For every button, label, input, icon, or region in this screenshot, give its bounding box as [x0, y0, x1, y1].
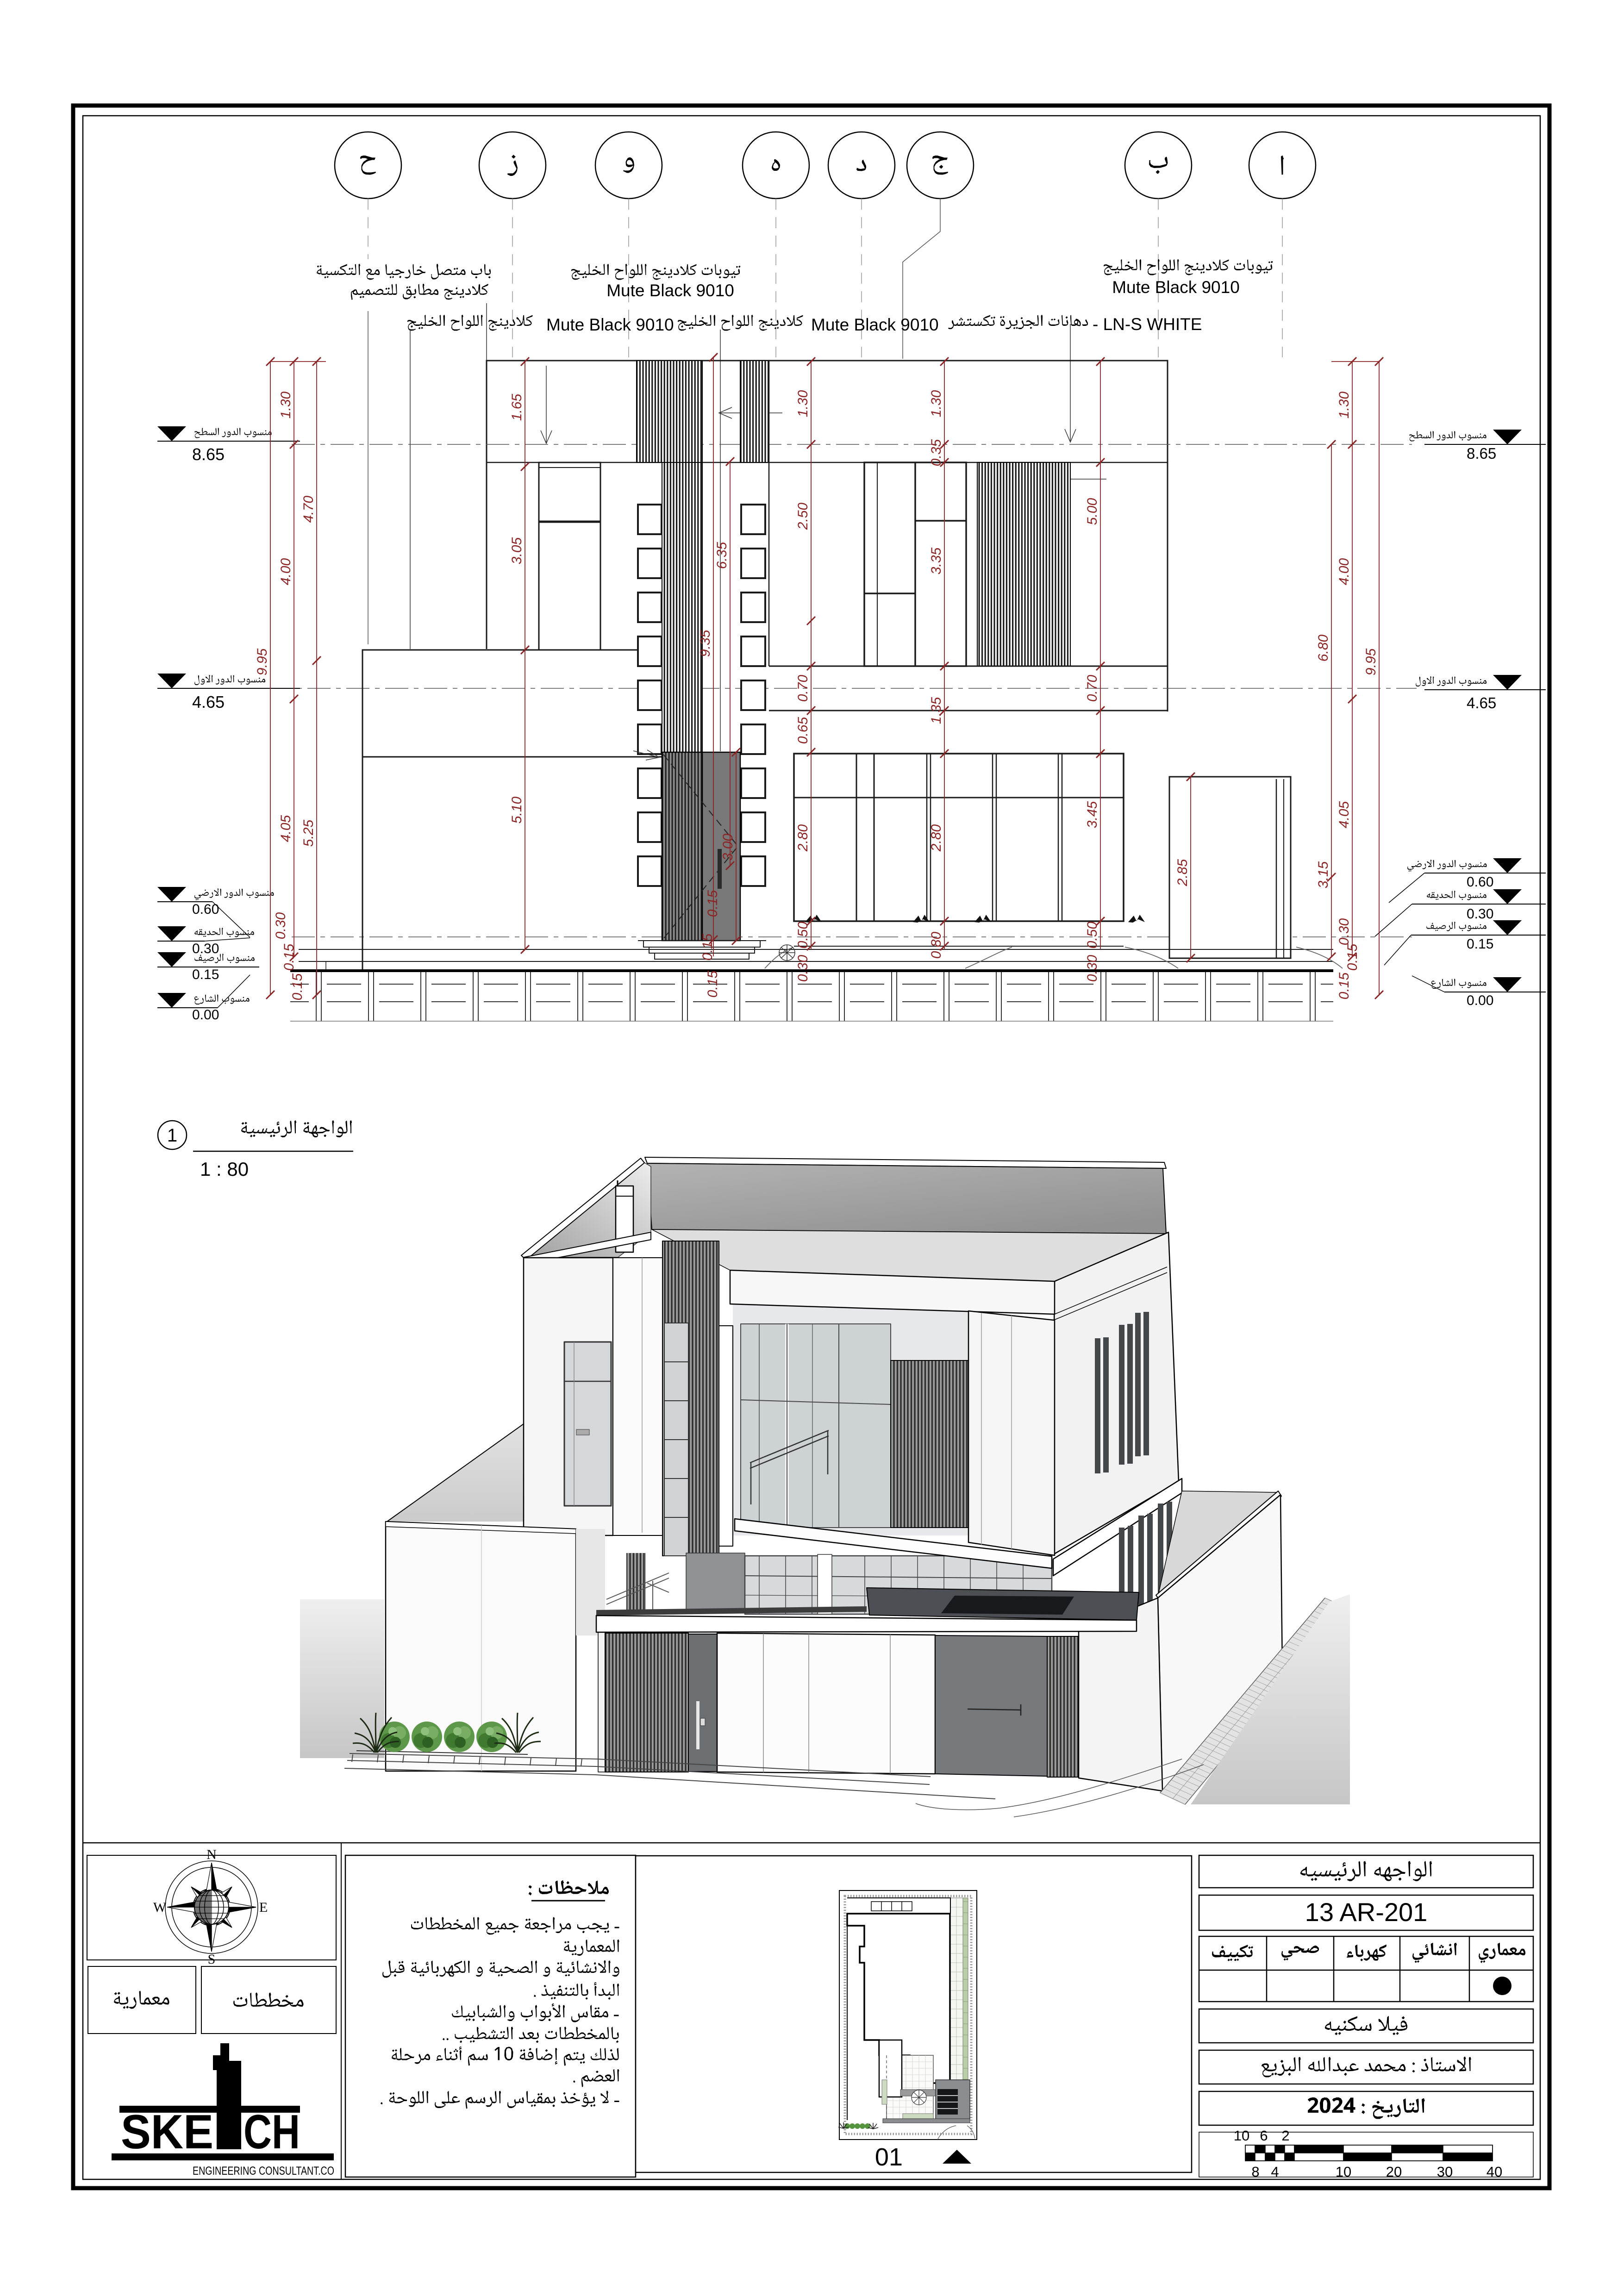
svg-text:0.35: 0.35 — [929, 439, 944, 466]
svg-text:1 : 80: 1 : 80 — [200, 1158, 249, 1180]
svg-text:0.15: 0.15 — [290, 973, 305, 1000]
svg-text:10: 10 — [1336, 2164, 1351, 2180]
svg-text:1.30: 1.30 — [929, 390, 944, 417]
svg-text:1.30: 1.30 — [795, 390, 811, 417]
svg-text:3.15: 3.15 — [1316, 861, 1331, 888]
svg-text:0.70: 0.70 — [1085, 674, 1100, 702]
svg-text:4.00: 4.00 — [1337, 558, 1352, 585]
svg-text:1.35: 1.35 — [929, 697, 944, 724]
svg-text:0.65: 0.65 — [795, 717, 811, 744]
svg-text:6: 6 — [1260, 2128, 1268, 2144]
svg-text:0.70: 0.70 — [795, 674, 811, 702]
svg-text:4.00: 4.00 — [278, 558, 294, 585]
svg-text:1: 1 — [167, 1125, 177, 1146]
svg-text:2.85: 2.85 — [1175, 859, 1190, 886]
svg-text:6.35: 6.35 — [714, 542, 730, 569]
svg-text:CH: CH — [244, 2105, 300, 2159]
svg-text:8.65: 8.65 — [192, 445, 225, 464]
svg-text:5.00: 5.00 — [1085, 498, 1100, 525]
svg-text:0.15: 0.15 — [281, 943, 297, 971]
svg-text:3.35: 3.35 — [929, 547, 944, 574]
svg-text:9.95: 9.95 — [1363, 648, 1379, 675]
svg-text:4.65: 4.65 — [1467, 694, 1496, 711]
svg-text:0.15: 0.15 — [1337, 972, 1352, 999]
svg-text:4.70: 4.70 — [301, 495, 316, 523]
svg-text:Mute Black 9010: Mute Black 9010 — [606, 281, 734, 300]
svg-text:9.35: 9.35 — [698, 630, 713, 657]
svg-text:40: 40 — [1487, 2164, 1502, 2180]
svg-text:1.30: 1.30 — [278, 391, 294, 418]
svg-text:1.30: 1.30 — [1337, 391, 1352, 418]
svg-text:4.05: 4.05 — [1337, 801, 1352, 828]
svg-text:0.30: 0.30 — [273, 912, 288, 939]
svg-text:4.65: 4.65 — [192, 693, 225, 711]
svg-text:0.15: 0.15 — [700, 933, 715, 961]
svg-text:01: 01 — [875, 2143, 903, 2171]
svg-text:30: 30 — [1437, 2164, 1453, 2180]
svg-text:9.95: 9.95 — [255, 648, 270, 675]
svg-text:8.65: 8.65 — [1467, 445, 1496, 462]
svg-text:W: W — [153, 1900, 167, 1915]
svg-text:0.30: 0.30 — [795, 955, 811, 982]
svg-text:0.50: 0.50 — [795, 921, 811, 948]
svg-text:Mute Black 9010: Mute Black 9010 — [811, 315, 939, 334]
svg-text:4: 4 — [1271, 2164, 1279, 2180]
svg-text:Mute Black 9010: Mute Black 9010 — [546, 315, 674, 334]
svg-text:0.15: 0.15 — [1345, 943, 1360, 971]
svg-text:2: 2 — [1281, 2128, 1289, 2144]
svg-text:0.15: 0.15 — [192, 967, 219, 982]
svg-text:0.30: 0.30 — [1085, 955, 1100, 982]
svg-text:0.15: 0.15 — [705, 970, 720, 998]
svg-text:20: 20 — [1386, 2164, 1402, 2180]
svg-text:Mute Black 9010: Mute Black 9010 — [1112, 278, 1240, 297]
svg-text:0.00: 0.00 — [1467, 993, 1493, 1008]
svg-text:N: N — [206, 1847, 217, 1862]
svg-text:0.30: 0.30 — [1467, 906, 1493, 922]
svg-text:0.50: 0.50 — [1085, 921, 1100, 948]
svg-text:10: 10 — [1234, 2128, 1249, 2144]
svg-text:0.30: 0.30 — [1337, 918, 1352, 945]
svg-text:5.10: 5.10 — [509, 796, 525, 824]
svg-text:0.80: 0.80 — [929, 931, 944, 959]
svg-text:2.80: 2.80 — [795, 824, 811, 852]
svg-text:13 AR-201: 13 AR-201 — [1305, 1897, 1428, 1927]
svg-text:SKE: SKE — [121, 2105, 213, 2159]
svg-text:8: 8 — [1251, 2164, 1259, 2180]
svg-text:6.80: 6.80 — [1316, 634, 1331, 661]
svg-text:ENGINEERING CONSULTANT.CO: ENGINEERING CONSULTANT.CO — [193, 2165, 334, 2177]
svg-text:3.05: 3.05 — [509, 537, 525, 564]
svg-text:2.80: 2.80 — [929, 824, 944, 852]
svg-text:1.65: 1.65 — [509, 393, 525, 421]
svg-text:0.60: 0.60 — [1467, 874, 1493, 890]
svg-text:0.15: 0.15 — [1467, 936, 1493, 952]
svg-text:3.00: 3.00 — [720, 833, 736, 861]
svg-text:0.15: 0.15 — [705, 890, 720, 917]
svg-text:2.50: 2.50 — [795, 502, 811, 530]
svg-text:3.45: 3.45 — [1085, 801, 1100, 828]
svg-text:0.00: 0.00 — [192, 1007, 219, 1023]
svg-text:5.25: 5.25 — [301, 819, 316, 847]
svg-text:4.05: 4.05 — [278, 815, 294, 842]
svg-text:E: E — [259, 1900, 268, 1915]
svg-text:0.30: 0.30 — [192, 941, 219, 956]
svg-text:- LN-S WHITE: - LN-S WHITE — [1093, 315, 1202, 334]
svg-text:S: S — [208, 1952, 216, 1967]
